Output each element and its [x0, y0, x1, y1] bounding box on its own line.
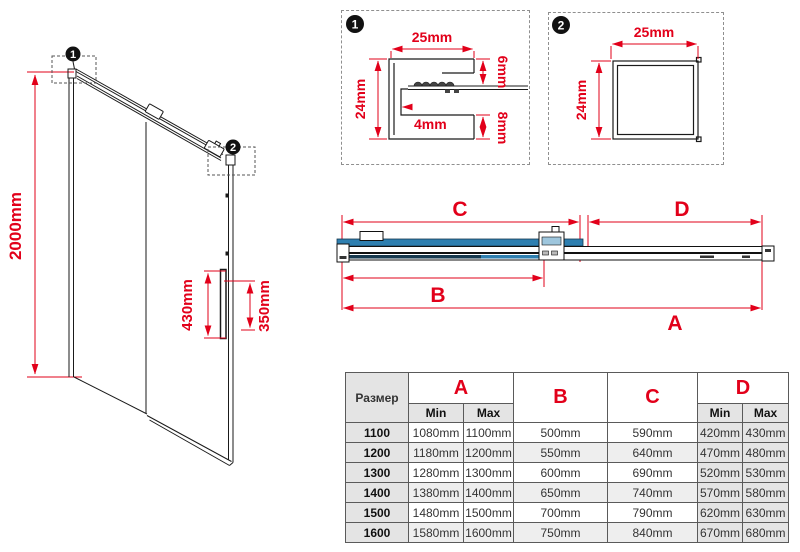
- cell-a-max: 1300mm: [464, 463, 514, 483]
- cell-b: 700mm: [514, 503, 608, 523]
- detail1-dim-8mm-label: 8mm: [495, 112, 511, 145]
- dim-350mm-label: 350mm: [256, 280, 273, 332]
- clamp-bracket-2: [539, 232, 564, 260]
- cell-c: 790mm: [608, 503, 698, 523]
- detail1-marker-number: 1: [352, 18, 359, 32]
- cell-a-min: 1280mm: [409, 463, 464, 483]
- rail-clamp-mid: [145, 104, 163, 120]
- cell-d-min: 670mm: [698, 523, 743, 543]
- detail2-dim-24mm-label: 24mm: [573, 80, 589, 120]
- table-header-C: C: [608, 373, 698, 423]
- marker1-number: 1: [70, 49, 76, 61]
- cell-d-max: 580mm: [743, 483, 789, 503]
- cell-d-max: 480mm: [743, 443, 789, 463]
- table-header-A: A: [409, 373, 514, 404]
- cell-a-max: 1100mm: [464, 423, 514, 443]
- section-label-B: B: [430, 284, 445, 307]
- cell-d-max: 430mm: [743, 423, 789, 443]
- detail1-dim-25mm-label: 25mm: [412, 29, 452, 45]
- table-header-D-min: Min: [698, 404, 743, 423]
- detail2-profile: [613, 58, 701, 142]
- detail-2-drawing: 2 25mm 24mm: [549, 13, 723, 164]
- table-header-D: D: [698, 373, 789, 404]
- cell-a-min: 1480mm: [409, 503, 464, 523]
- table-row: 1500 1480mm 1500mm 700mm 790mm 620mm 630…: [346, 503, 789, 523]
- dim-2000mm-label: 2000mm: [6, 192, 25, 260]
- table-row: 1300 1280mm 1300mm 600mm 690mm 520mm 530…: [346, 463, 789, 483]
- table-header-D-max: Max: [743, 404, 789, 423]
- detail1-dim-24mm-label: 24mm: [352, 79, 368, 119]
- detail1-seal: [414, 82, 454, 86]
- plan-section-diagram: C D B A: [330, 190, 800, 350]
- detail2-dim-24mm: [591, 61, 611, 139]
- fixed-panel-profile: [560, 254, 763, 261]
- detail2-dim-25mm: [611, 44, 698, 59]
- cell-a-min: 1580mm: [409, 523, 464, 543]
- table-row: 1200 1180mm 1200mm 550mm 640mm 470mm 480…: [346, 443, 789, 463]
- table-row: 1600 1580mm 1600mm 750mm 840mm 670mm 680…: [346, 523, 789, 543]
- cell-size: 1300: [346, 463, 409, 483]
- detail-2-callout: 2 25mm 24mm: [548, 12, 724, 165]
- cell-size: 1600: [346, 523, 409, 543]
- cell-d-min: 420mm: [698, 423, 743, 443]
- glass-navy-segment: [346, 255, 481, 259]
- cell-size: 1200: [346, 443, 409, 463]
- cell-b: 650mm: [514, 483, 608, 503]
- door-frame: [68, 69, 235, 466]
- cell-d-max: 630mm: [743, 503, 789, 523]
- cell-size: 1100: [346, 423, 409, 443]
- cell-d-max: 680mm: [743, 523, 789, 543]
- section-label-A: A: [667, 312, 682, 335]
- cell-c: 690mm: [608, 463, 698, 483]
- door-perspective-diagram: 2000mm: [0, 0, 330, 552]
- detail-1-drawing: 1 2: [342, 11, 529, 164]
- cell-b: 550mm: [514, 443, 608, 463]
- table-row: 1400 1380mm 1400mm 650mm 740mm 570mm 580…: [346, 483, 789, 503]
- cell-b: 600mm: [514, 463, 608, 483]
- cell-a-max: 1500mm: [464, 503, 514, 523]
- cell-b: 500mm: [514, 423, 608, 443]
- cell-a-min: 1380mm: [409, 483, 464, 503]
- cell-c: 740mm: [608, 483, 698, 503]
- table-header-size: Размер: [346, 373, 409, 423]
- shower-door-technical-drawing: 2000mm: [0, 0, 800, 552]
- detail-1-callout: 1 2: [341, 10, 530, 165]
- marker2-number: 2: [230, 142, 236, 154]
- size-table: Размер A B C D Min Max Min Max 1100 1080…: [345, 372, 789, 543]
- cell-a-min: 1080mm: [409, 423, 464, 443]
- left-wall-bracket: [337, 244, 349, 262]
- detail1-dim-4mm-label: 4mm: [414, 116, 447, 132]
- table-header-B: B: [514, 373, 608, 423]
- section-profiles: [337, 227, 774, 263]
- right-end-cap: [762, 246, 774, 261]
- cell-c: 840mm: [608, 523, 698, 543]
- cell-size: 1400: [346, 483, 409, 503]
- detail1-dim-24mm: [369, 59, 387, 139]
- cell-d-min: 520mm: [698, 463, 743, 483]
- cell-c: 590mm: [608, 423, 698, 443]
- cell-d-max: 530mm: [743, 463, 789, 483]
- detail2-marker-number: 2: [558, 19, 565, 33]
- cell-d-min: 620mm: [698, 503, 743, 523]
- detail1-dim-6mm: [476, 59, 490, 84]
- table-header-A-min: Min: [409, 404, 464, 423]
- cell-b: 750mm: [514, 523, 608, 543]
- cell-d-min: 570mm: [698, 483, 743, 503]
- detail2-dim-25mm-label: 25mm: [634, 24, 674, 40]
- table-header-A-max: Max: [464, 404, 514, 423]
- cell-a-max: 1400mm: [464, 483, 514, 503]
- section-label-C: C: [452, 198, 467, 221]
- detail1-dim-8mm: [476, 115, 490, 139]
- door-handle: [221, 270, 227, 339]
- section-label-D: D: [674, 198, 689, 221]
- table-row: 1100 1080mm 1100mm 500mm 590mm 420mm 430…: [346, 423, 789, 443]
- detail1-dim-6mm-label: 6mm: [495, 56, 511, 89]
- cell-size: 1500: [346, 503, 409, 523]
- cell-c: 640mm: [608, 443, 698, 463]
- detail1-dim-25mm: [391, 49, 474, 58]
- cell-a-max: 1200mm: [464, 443, 514, 463]
- cell-d-min: 470mm: [698, 443, 743, 463]
- clamp-bracket-1: [360, 232, 383, 241]
- cell-a-max: 1600mm: [464, 523, 514, 543]
- dim-430mm-label: 430mm: [179, 279, 196, 331]
- cell-a-min: 1180mm: [409, 443, 464, 463]
